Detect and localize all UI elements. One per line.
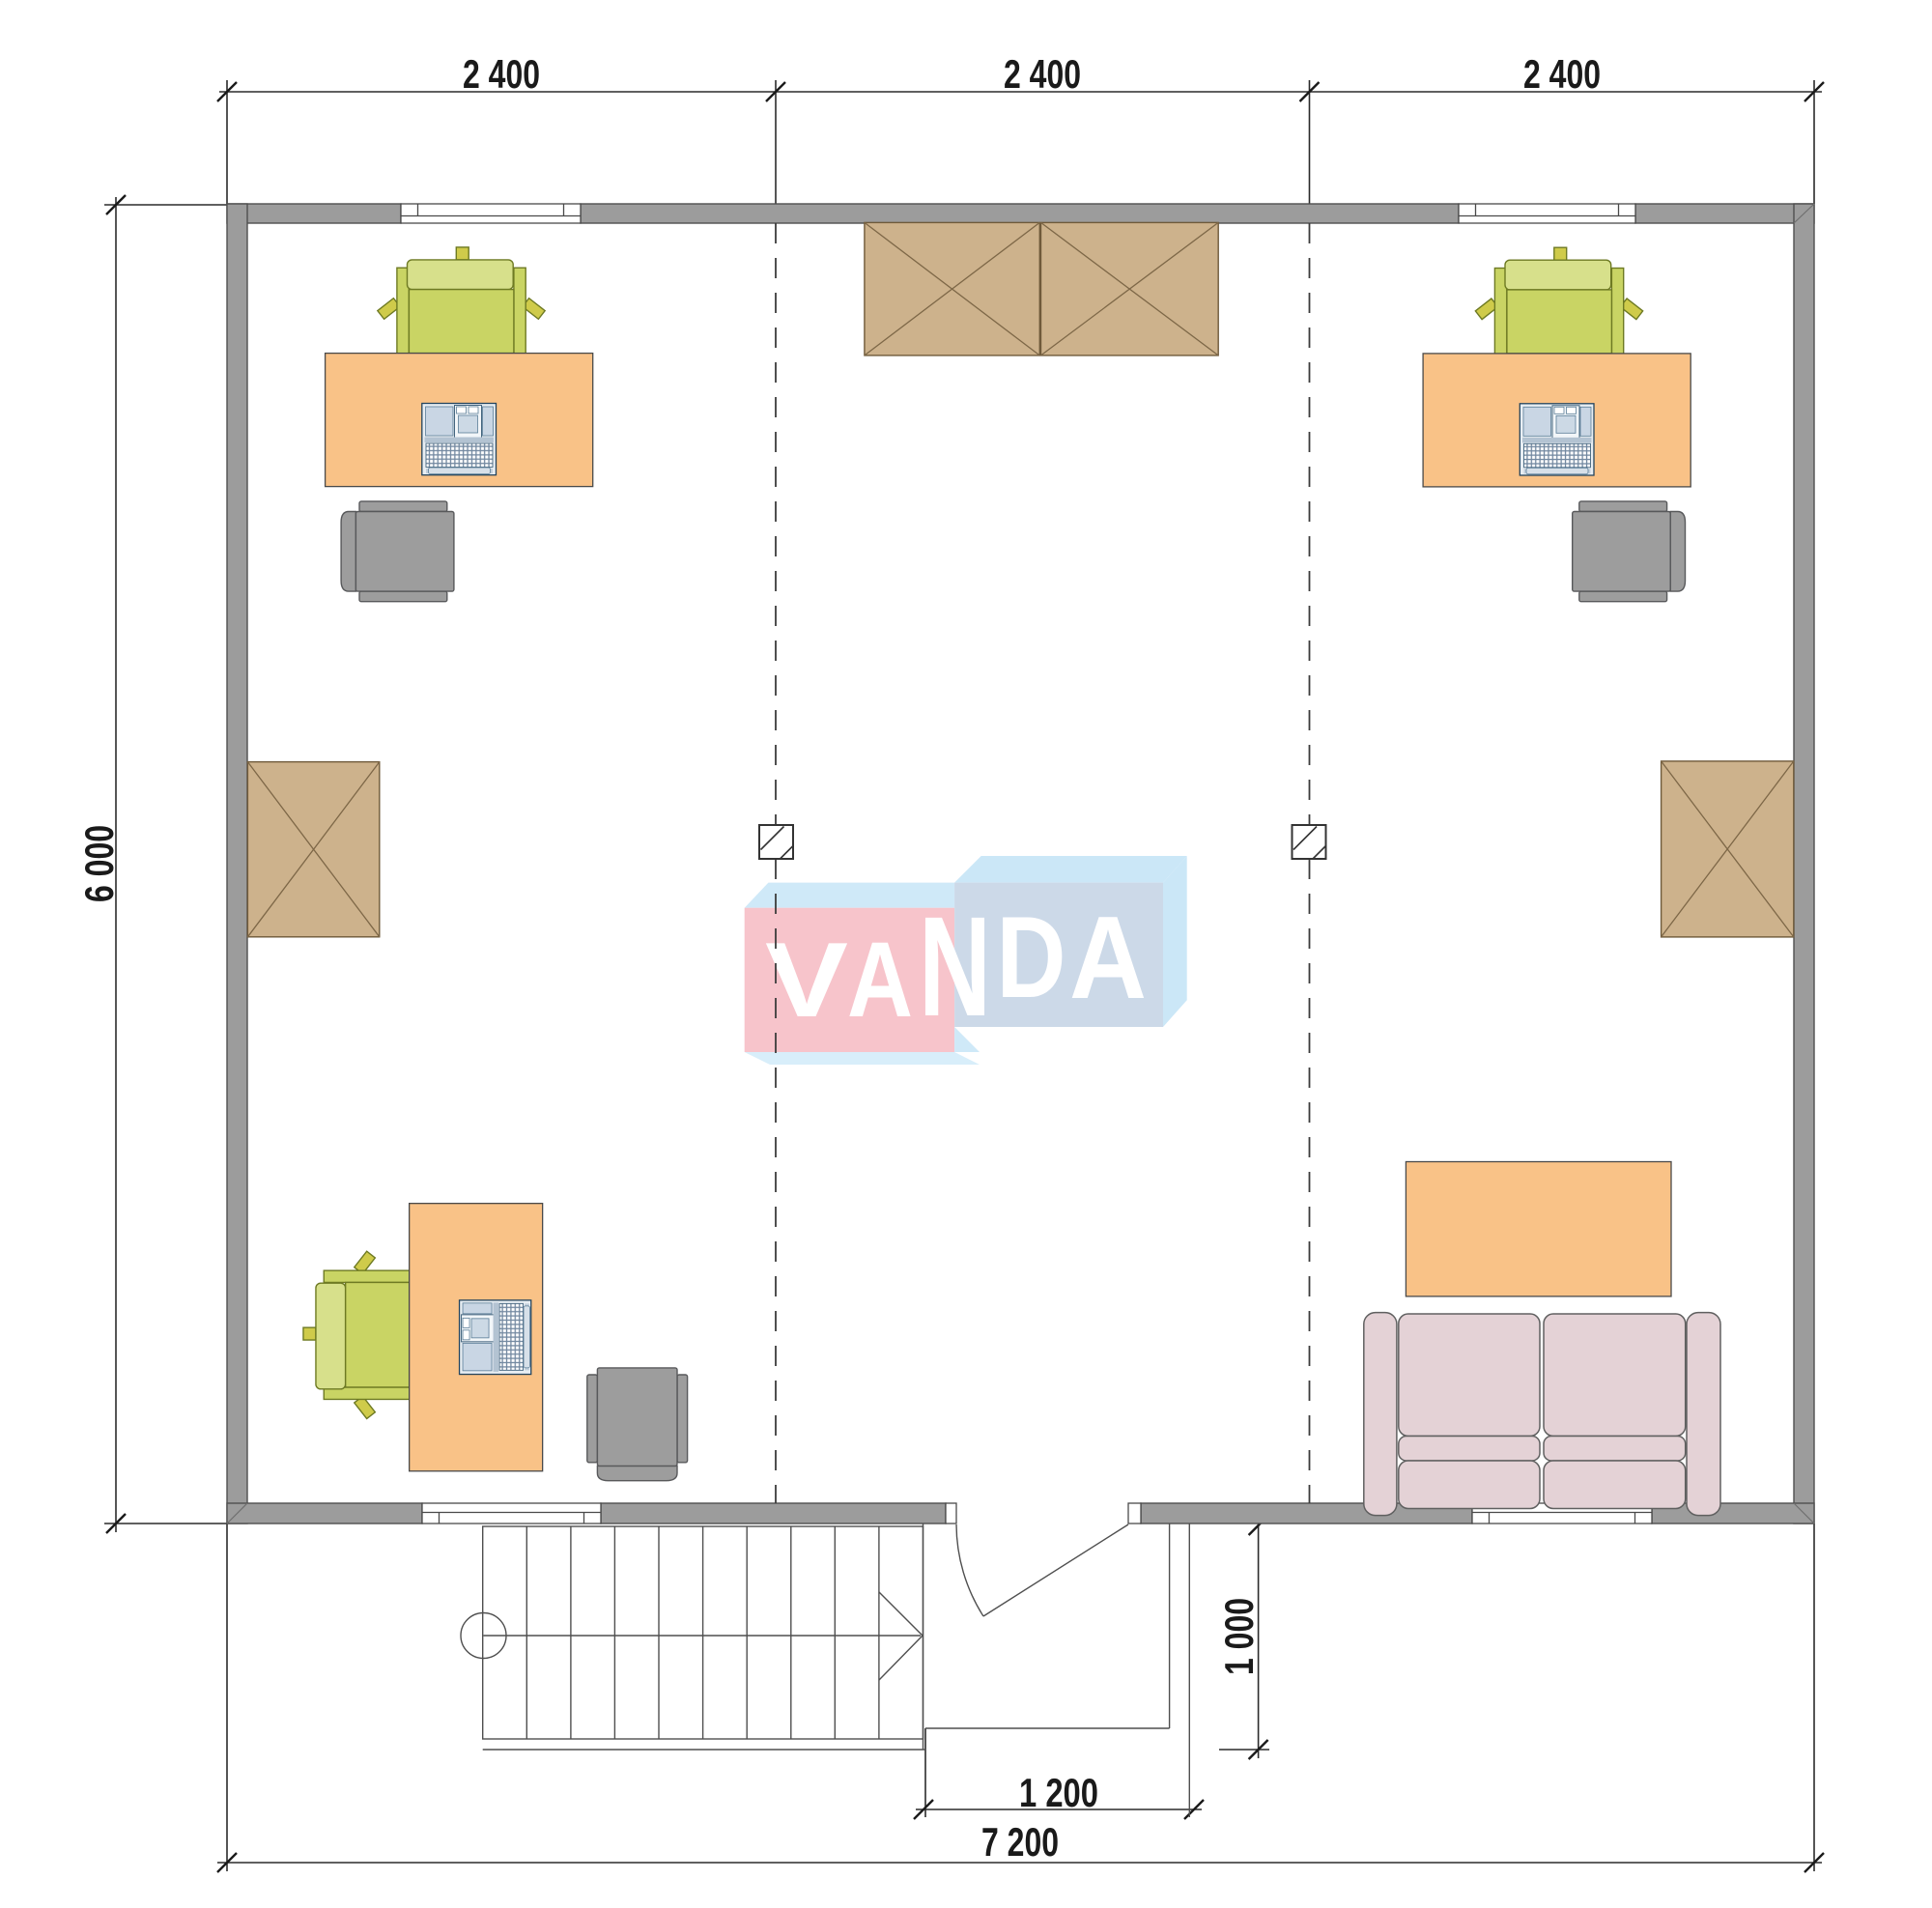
svg-text:2 400: 2 400 [1004, 51, 1081, 97]
svg-text:2 400: 2 400 [463, 51, 540, 97]
svg-text:A: A [1069, 892, 1147, 1023]
svg-text:A: A [847, 921, 913, 1039]
svg-text:D: D [997, 893, 1066, 1022]
svg-text:7 200: 7 200 [981, 1819, 1059, 1865]
svg-text:2 400: 2 400 [1523, 51, 1601, 97]
svg-text:1 200: 1 200 [1019, 1770, 1098, 1815]
svg-text:1 000: 1 000 [1216, 1598, 1262, 1675]
svg-text:6 000: 6 000 [76, 825, 122, 902]
svg-text:V: V [765, 921, 848, 1039]
svg-text:N: N [919, 888, 991, 1046]
